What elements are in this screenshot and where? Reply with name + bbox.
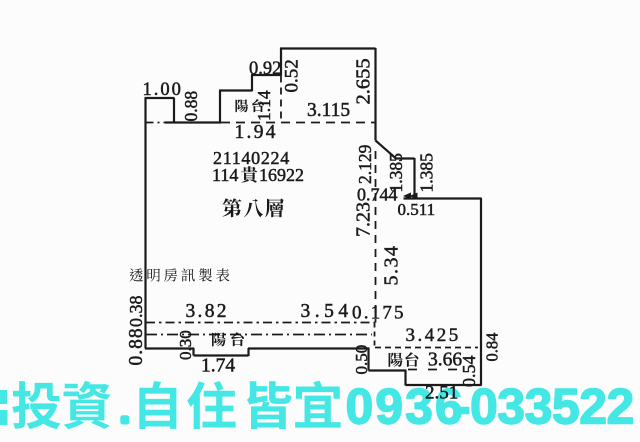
svg-text:0.52: 0.52 <box>282 59 303 92</box>
svg-text:0.30: 0.30 <box>176 330 195 360</box>
svg-text:033522: 033522 <box>470 379 634 435</box>
svg-text:2.655: 2.655 <box>353 58 375 104</box>
svg-text:7.23: 7.23 <box>353 202 375 237</box>
svg-text:0.54: 0.54 <box>459 356 479 388</box>
svg-text:3.115: 3.115 <box>307 100 350 121</box>
svg-text:2.129: 2.129 <box>355 144 375 184</box>
svg-text:1.74: 1.74 <box>201 356 235 377</box>
svg-text:0.175: 0.175 <box>352 303 406 324</box>
svg-text:114: 114 <box>212 165 238 185</box>
svg-text:1.14: 1.14 <box>254 90 274 121</box>
svg-text:3.82: 3.82 <box>186 301 229 322</box>
svg-text:0.84: 0.84 <box>483 333 502 362</box>
svg-text:1.94: 1.94 <box>235 122 278 143</box>
svg-text:16922: 16922 <box>259 165 304 185</box>
svg-text:0.92: 0.92 <box>249 59 281 79</box>
svg-text:0.38: 0.38 <box>126 296 146 328</box>
svg-text:3.66: 3.66 <box>428 350 462 371</box>
svg-text:0.50: 0.50 <box>352 345 371 375</box>
svg-text:3.425: 3.425 <box>406 325 461 346</box>
svg-text:0.511: 0.511 <box>398 200 436 219</box>
svg-text:1.00: 1.00 <box>143 80 183 100</box>
svg-text:5.34: 5.34 <box>381 245 403 286</box>
svg-text:3.54: 3.54 <box>301 301 353 322</box>
svg-text:2.51: 2.51 <box>425 383 458 404</box>
svg-text:0.88: 0.88 <box>126 327 147 365</box>
svg-text:0.88: 0.88 <box>181 91 201 122</box>
svg-text:1.385: 1.385 <box>417 153 437 193</box>
svg-text:0.744: 0.744 <box>357 185 398 205</box>
